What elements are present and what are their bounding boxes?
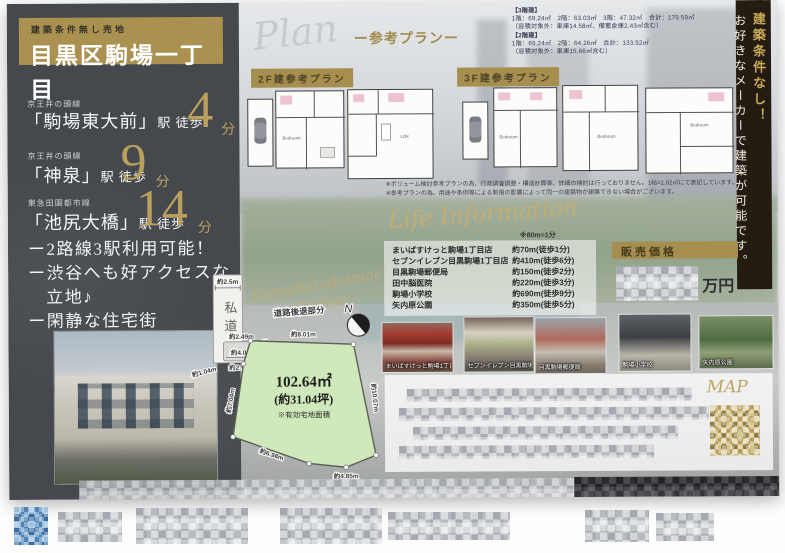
parcel-area-note: ※有効宅地面積 xyxy=(278,409,331,419)
plan-3f-floor3: Bedroom xyxy=(645,87,733,173)
blurred-remarks-line xyxy=(399,445,654,459)
plan-2f-floor1: Bedroom xyxy=(275,90,344,168)
private-road-width: 約2.5m xyxy=(217,277,239,286)
plan-subtitle: ー参考プランー xyxy=(354,28,459,49)
facility-photo-school: 駒場小学校 xyxy=(619,314,690,370)
blurred-footer-strip-dark xyxy=(574,476,779,497)
remarks-panel: MAP xyxy=(385,373,774,472)
station-3-unit: 分 xyxy=(198,217,212,237)
blurred-remarks-line xyxy=(399,406,709,421)
life-info-note: ※80m=1分 xyxy=(520,230,556,240)
life-item: 矢内原公園約350m(徒歩5分) xyxy=(384,299,596,311)
life-item-distance: 約150m(徒歩2分) xyxy=(512,266,574,277)
life-item-name: 田中脳医院 xyxy=(392,278,432,289)
photo-caption: まいばすけっと駒場1丁目店 xyxy=(386,361,451,370)
blurred-company-info xyxy=(58,512,122,542)
plan-3f-floor2: Bedroom xyxy=(562,85,638,171)
life-item-distance: 約690m(徒歩9分) xyxy=(512,288,574,299)
life-item-name: まいばすけっと駒場1丁目店 xyxy=(392,244,493,256)
private-road-label: 私道 xyxy=(220,301,239,347)
life-item-distance: 約350m(徒歩5分) xyxy=(512,299,574,310)
page: 建築条件無し売地 目黒区駒場一丁目 京王井の頭線 「駒場東大前」駅 徒歩 4 分… xyxy=(0,0,785,553)
real-estate-flyer: 建築条件無し売地 目黒区駒場一丁目 京王井の頭線 「駒場東大前」駅 徒歩 4 分… xyxy=(7,0,780,500)
station-1-name: 「駒場東大前」駅 徒歩 xyxy=(24,107,203,134)
feature-line-1: ー2路線3駅利用可能！ xyxy=(28,237,215,262)
facility-photo-supermarket: まいばすけっと駒場1丁目店 xyxy=(382,323,452,372)
room-label: Bedroom xyxy=(597,134,615,139)
station-3-line: 東急田園都市線 xyxy=(28,198,91,209)
car-icon xyxy=(254,118,266,144)
room-label: Bedroom xyxy=(690,122,708,127)
title-band: 建築条件無し売地 目黒区駒場一丁目 xyxy=(19,17,223,65)
vertical-banner: 建築条件なし！ お好きなメーカーで建築が可能です。 xyxy=(736,0,773,289)
life-item-distance: 約220m(徒歩3分) xyxy=(512,277,574,288)
station-2-line: 京王井の頭線 xyxy=(27,151,81,162)
room-label: Bedroom xyxy=(499,134,517,139)
plan-3f-label: 3F建参考プラン xyxy=(457,67,559,87)
room-label: LDK xyxy=(400,134,409,139)
room-label: Bedroom xyxy=(282,135,300,140)
floorplan-lines xyxy=(646,88,734,174)
floorplan-lines xyxy=(276,91,345,169)
facility-photo-park: 矢内原公園 xyxy=(699,316,772,368)
station-1-name-text: 「駒場東大前」 xyxy=(24,111,157,132)
car-icon xyxy=(469,117,481,143)
life-item-name: 矢内原公園 xyxy=(392,300,432,311)
blurred-remarks-line xyxy=(407,387,692,401)
plan-script-title: Plan xyxy=(251,6,340,59)
photo-caption: 矢内原公園 xyxy=(703,357,771,366)
plan-3f-floor1: Bedroom xyxy=(493,87,557,167)
plan-disclaimer-2: ※参考プランの為、用途や条例等による制限の影響によって同一の建築物が建築できない… xyxy=(386,187,678,198)
setback-dim-left: 約1.04m xyxy=(191,364,218,379)
floorplan-lines xyxy=(563,86,639,172)
blurred-footer-strip xyxy=(79,478,579,500)
life-item-name: 目黒駒場郵便局 xyxy=(392,267,448,278)
blurred-company-info xyxy=(656,513,714,541)
plan-2f-garage xyxy=(247,99,273,167)
map-script-title: MAP xyxy=(707,377,748,397)
plan-2f-floor2: LDK xyxy=(347,89,433,179)
feature-line-4: ー閑静な住宅街 xyxy=(28,309,158,334)
facility-photo-postoffice: 目黒駒場郵便局 xyxy=(535,318,605,373)
feature-line-3: 立地♪ xyxy=(46,286,93,310)
parcel-area-m2: 102.64㎡ xyxy=(276,372,332,390)
station-1-unit: 分 xyxy=(221,119,235,139)
photo-caption: セブンイレブン目黒駒場1丁目店 xyxy=(468,360,532,369)
life-item-distance: 約410m(徒歩6分) xyxy=(512,255,574,266)
floorplan-lines xyxy=(494,88,558,168)
banner-gold-text: 建築条件なし！ xyxy=(749,12,769,289)
parcel-dim-top: 約8.01m xyxy=(291,329,316,338)
facility-photo-convenience: セブンイレブン目黒駒場1丁目店 xyxy=(464,317,533,371)
house-windows xyxy=(77,383,194,429)
blurred-company-info xyxy=(388,512,510,540)
blurred-company-info xyxy=(280,508,382,544)
setback-label: 道路後退部分 xyxy=(273,305,325,319)
north-compass-icon: N xyxy=(344,303,374,336)
qr-code xyxy=(710,405,760,455)
station-3-minutes: 14 xyxy=(136,183,188,235)
blurred-company-info xyxy=(136,508,248,544)
price-unit: 万円 xyxy=(702,272,734,296)
life-item-distance: 約70m(徒歩1分) xyxy=(512,244,570,255)
life-item-name: 駒場小学校 xyxy=(392,289,432,300)
floorplan-lines xyxy=(348,90,434,180)
station-2-name-text: 「神泉」 xyxy=(25,166,101,186)
parcel-dim-right: 約10.07m xyxy=(369,383,381,413)
blurred-company-logo xyxy=(14,507,48,545)
photo-caption: 目黒駒場郵便局 xyxy=(539,362,604,371)
blurred-company-info xyxy=(585,510,649,542)
blurred-remarks-line xyxy=(413,426,678,440)
photo-caption: 駒場小学校 xyxy=(623,359,689,368)
parcel-dim-left: 約7.04m xyxy=(224,387,237,413)
plan-spec-block: 【3階建】 1階：69.24㎡ 2階：63.03㎡ 3階：47.32㎡ 合計：1… xyxy=(512,6,740,56)
station-1-minutes: 4 xyxy=(187,85,213,137)
life-item-name: セブンイレブン目黒駒場1丁目店 xyxy=(392,255,509,267)
price-label-band: 販売価格 xyxy=(612,241,738,259)
sale-type-badge: 建築条件無し売地 xyxy=(31,22,223,36)
parcel-area-tsubo: (約31.04坪) xyxy=(274,391,333,406)
station-3-name-text: 「池尻大橋」 xyxy=(25,212,139,233)
spec-2f-note: （容積対象外：車庫15.66㎡含む） xyxy=(512,47,740,56)
life-info-panel: まいばすけっと駒場1丁目店約70m(徒歩1分) セブンイレブン目黒駒場1丁目店約… xyxy=(384,240,596,316)
blurred-price-value xyxy=(616,266,698,300)
plan-3f-garage xyxy=(462,101,488,159)
compass-n: N xyxy=(344,303,352,315)
plan-2f-label: 2F建参考プラン xyxy=(251,68,353,88)
